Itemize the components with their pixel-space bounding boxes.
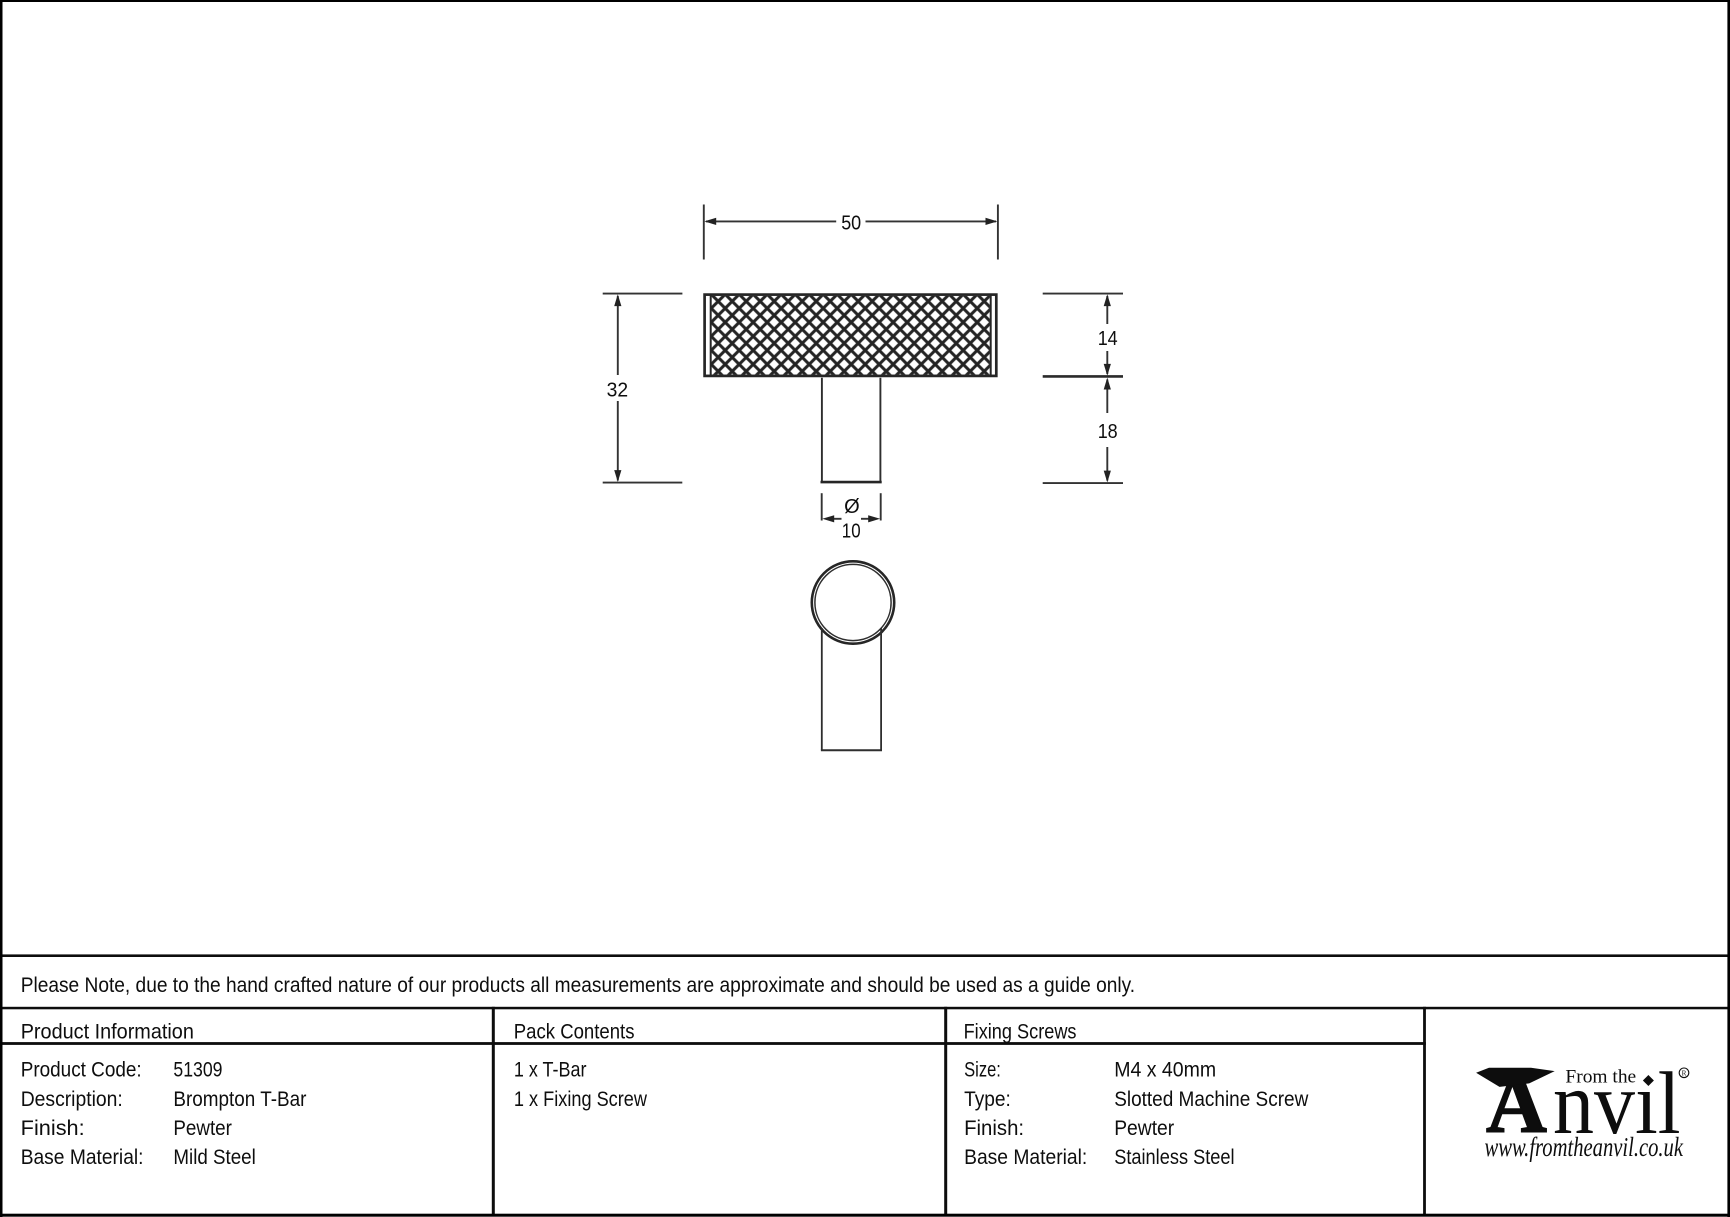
svg-text:Slotted Machine Screw: Slotted Machine Screw xyxy=(1114,1088,1309,1111)
svg-text:Brompton T-Bar: Brompton T-Bar xyxy=(173,1088,306,1111)
svg-text:Pewter: Pewter xyxy=(173,1117,232,1140)
svg-text:Pack Contents: Pack Contents xyxy=(514,1021,635,1044)
svg-text:www.fromtheanvil.co.uk: www.fromtheanvil.co.uk xyxy=(1485,1132,1684,1162)
svg-text:Stainless Steel: Stainless Steel xyxy=(1114,1146,1234,1169)
svg-text:Ø: Ø xyxy=(844,496,860,518)
svg-text:Mild Steel: Mild Steel xyxy=(173,1146,255,1169)
svg-text:Description:: Description: xyxy=(21,1088,123,1111)
svg-text:Base Material:: Base Material: xyxy=(964,1146,1087,1169)
svg-text:50: 50 xyxy=(841,212,861,234)
svg-text:14: 14 xyxy=(1098,328,1118,350)
svg-text:Finish:: Finish: xyxy=(964,1117,1024,1140)
svg-text:51309: 51309 xyxy=(173,1058,222,1081)
svg-text:10: 10 xyxy=(842,521,861,543)
svg-text:Type:: Type: xyxy=(964,1088,1011,1111)
svg-text:R: R xyxy=(1682,1070,1687,1078)
svg-text:Fixing Screws: Fixing Screws xyxy=(964,1021,1077,1044)
svg-text:1 x Fixing Screw: 1 x Fixing Screw xyxy=(514,1088,648,1111)
svg-text:Product Information: Product Information xyxy=(21,1021,194,1044)
svg-text:Please Note, due to the hand c: Please Note, due to the hand crafted nat… xyxy=(21,974,1135,997)
svg-text:32: 32 xyxy=(607,380,629,402)
svg-text:18: 18 xyxy=(1098,421,1118,443)
svg-text:Size:: Size: xyxy=(964,1058,1001,1081)
svg-text:1 x T-Bar: 1 x T-Bar xyxy=(514,1058,587,1081)
svg-text:Finish:: Finish: xyxy=(21,1117,85,1140)
svg-text:Product Code:: Product Code: xyxy=(21,1058,142,1081)
svg-text:Base Material:: Base Material: xyxy=(21,1146,144,1169)
svg-text:M4 x 40mm: M4 x 40mm xyxy=(1114,1058,1216,1081)
svg-text:Pewter: Pewter xyxy=(1114,1117,1174,1140)
